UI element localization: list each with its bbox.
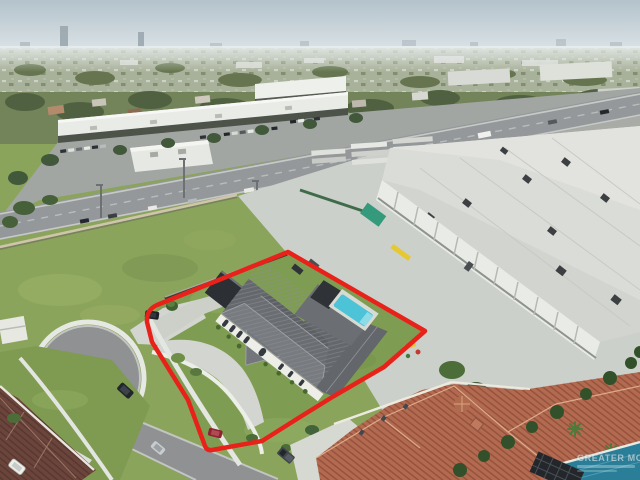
- watermark-subline: [577, 465, 635, 468]
- aerial-photo: GREATER MCALLEN: [0, 0, 640, 480]
- aerial-scene: [0, 0, 640, 480]
- watermark-text: GREATER MCALLEN: [577, 453, 640, 463]
- watermark-subline2: [577, 470, 617, 472]
- watermark: GREATER MCALLEN: [577, 454, 640, 472]
